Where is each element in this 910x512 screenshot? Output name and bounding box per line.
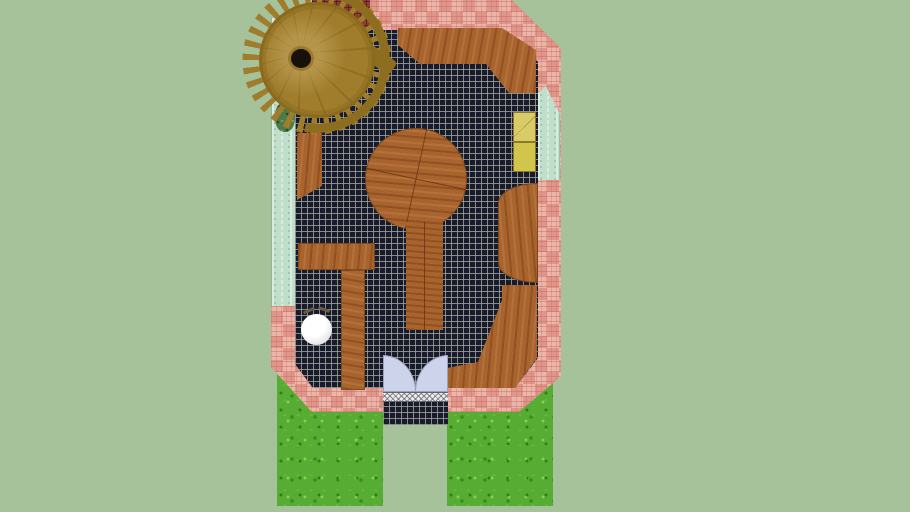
table-seam [405, 129, 427, 229]
wood-l-bench-vertical [341, 270, 365, 390]
round-wood-table [365, 128, 467, 230]
entrance-threshold [383, 392, 448, 402]
spiral-staircase [259, 2, 375, 118]
table-runner [406, 222, 443, 330]
yellow-box-bottom [513, 142, 536, 172]
white-sphere-stool [301, 314, 332, 345]
yellow-box-top [513, 112, 536, 142]
wood-half-round-table [498, 183, 538, 283]
wood-l-bench-horizontal [298, 243, 375, 270]
staircase-center-post [291, 49, 311, 68]
model-viewport[interactable] [0, 0, 910, 512]
